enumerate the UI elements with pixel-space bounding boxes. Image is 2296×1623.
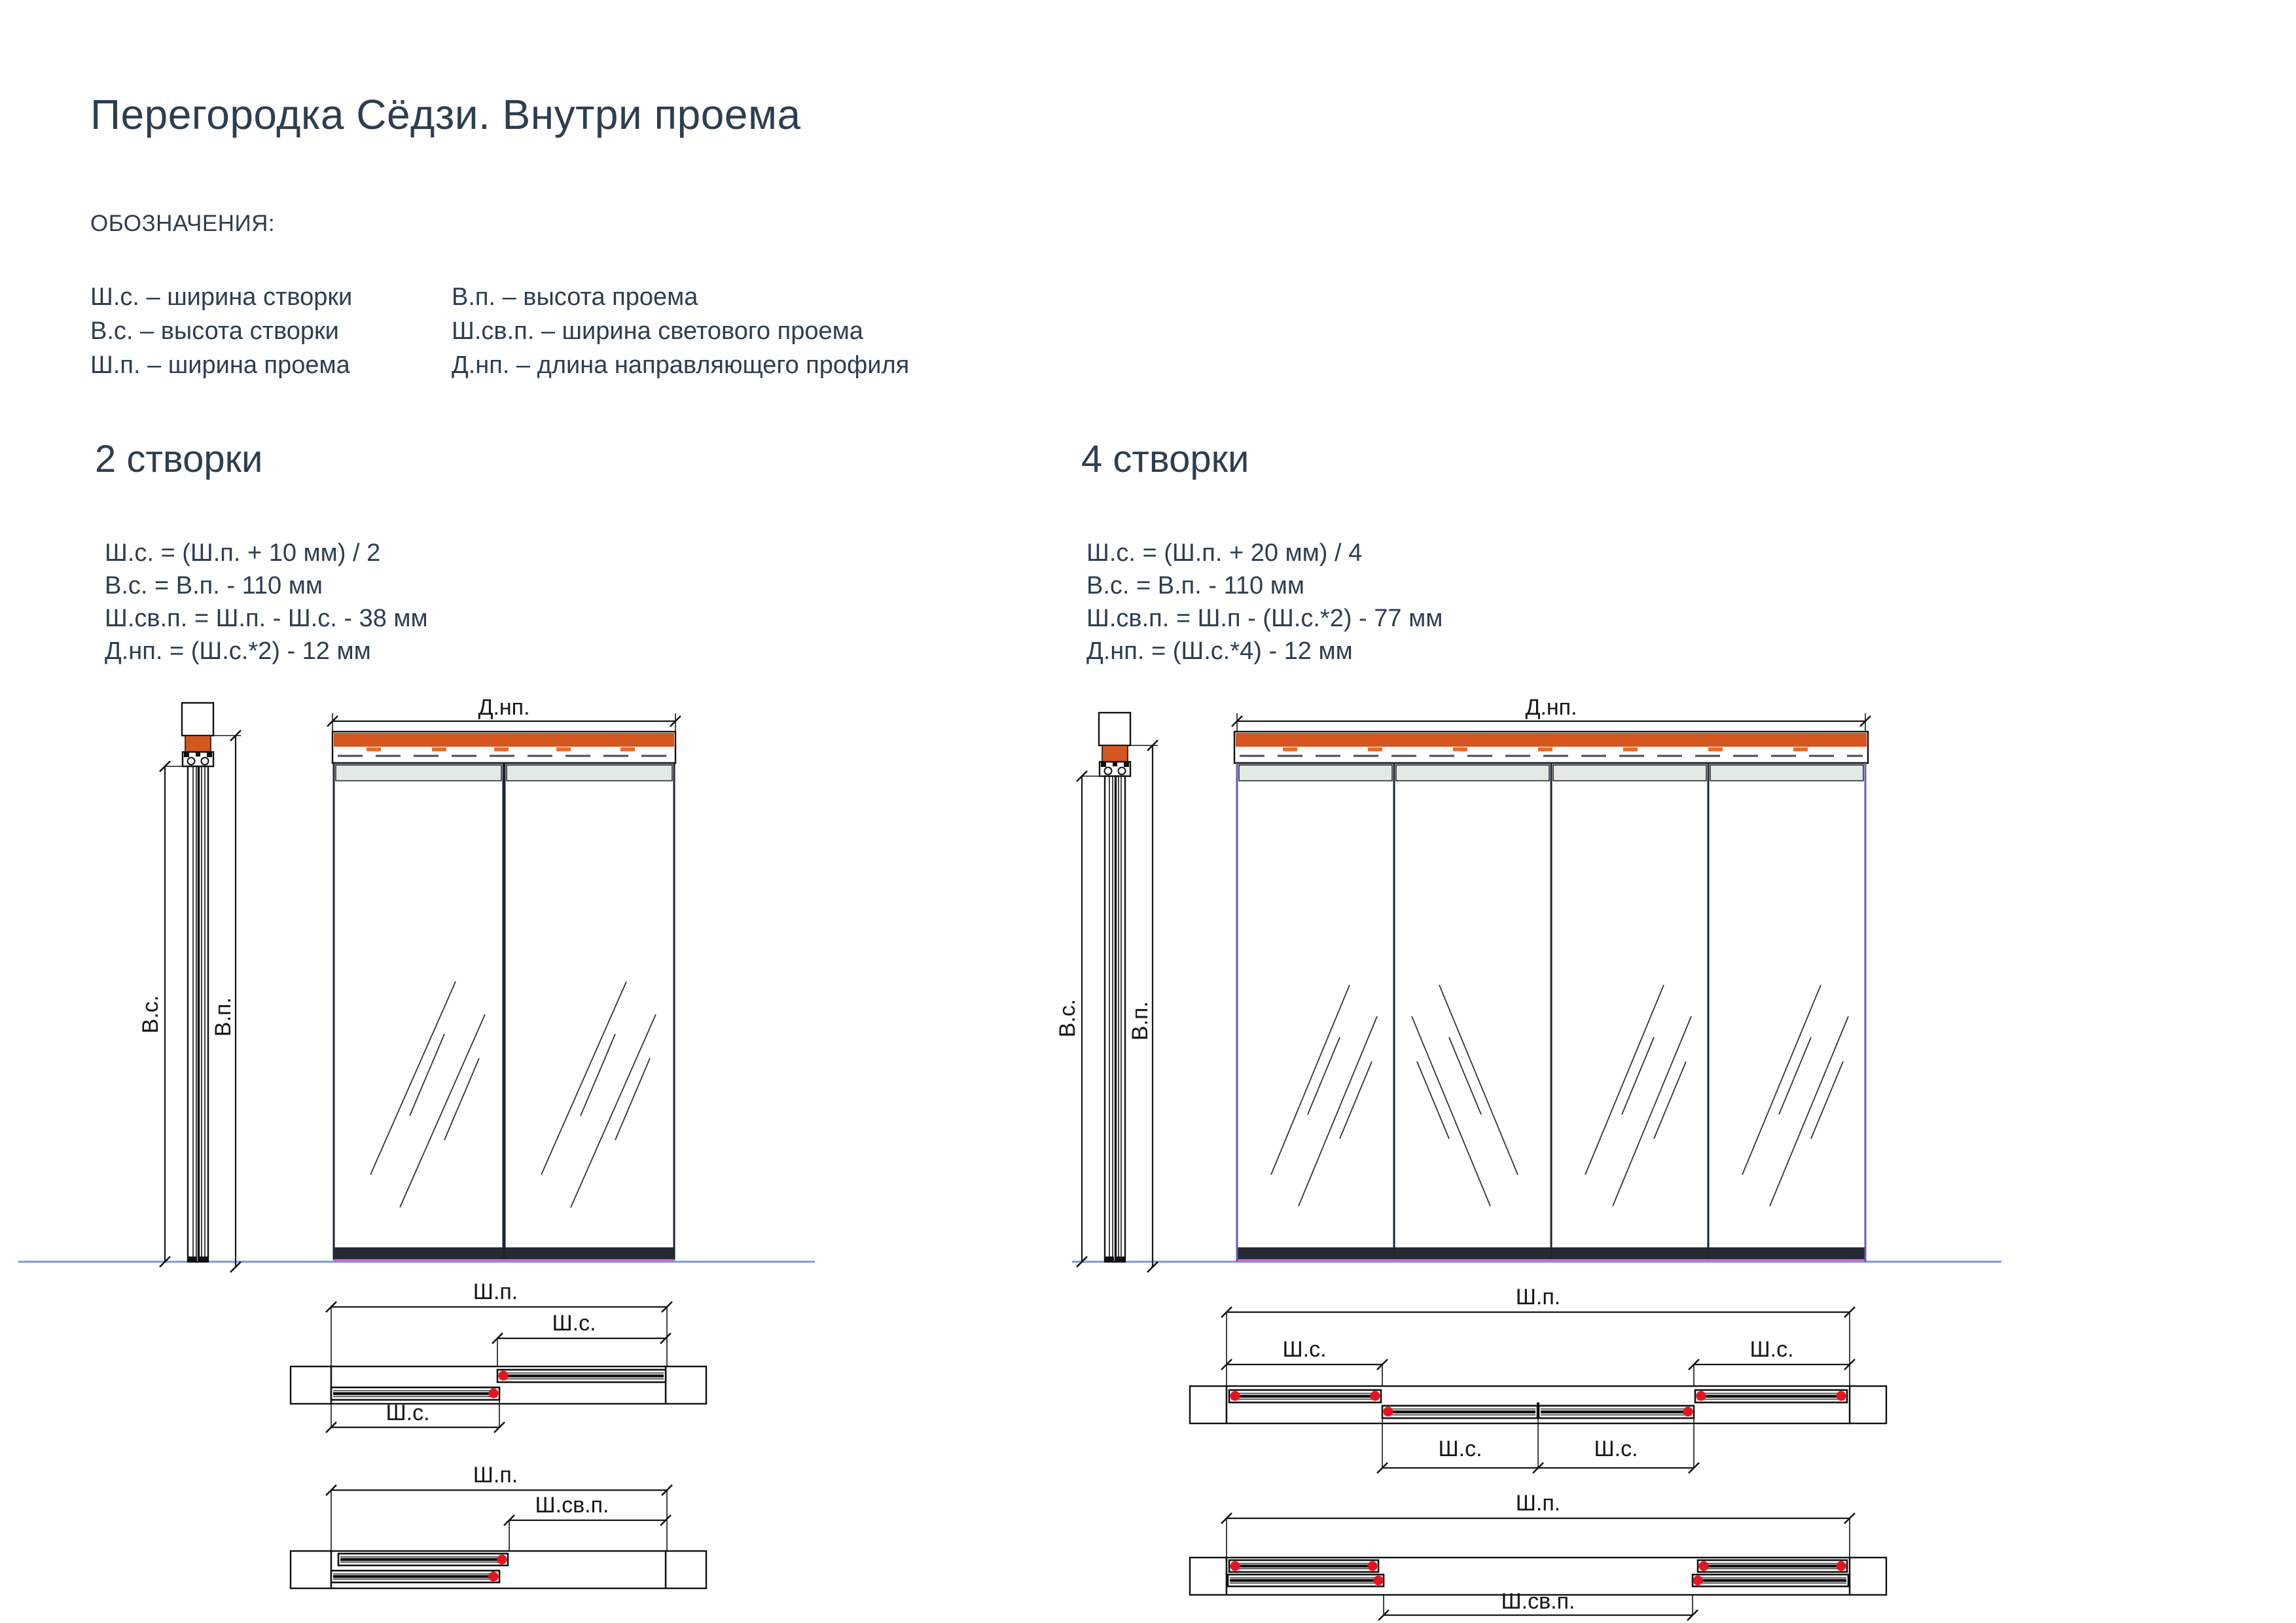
two-leaf-side-profile bbox=[182, 703, 213, 1262]
leaf-plan-bar bbox=[1695, 1390, 1847, 1402]
dim-label-shp: Ш.п. bbox=[473, 1279, 518, 1304]
leaf-plan-bar bbox=[1693, 1575, 1848, 1586]
legend-item: Ш.св.п. – ширина светового проема bbox=[452, 314, 863, 348]
leaf-plan-bar bbox=[1228, 1575, 1384, 1586]
dim-label-vs: В.с. bbox=[1055, 999, 1080, 1038]
dim-vs: В.с. bbox=[1055, 771, 1105, 1267]
dim-dnp: Д.нп. bbox=[327, 695, 681, 732]
dim-dnp: Д.нп. bbox=[1232, 695, 1871, 732]
track-cover bbox=[1236, 733, 1867, 747]
legend-item: В.с. – высота створки bbox=[90, 314, 339, 348]
handle-dot bbox=[497, 1555, 507, 1565]
handle-dot bbox=[1837, 1391, 1846, 1401]
formula: Ш.св.п. = Ш.п. - Ш.с. - 38 мм bbox=[105, 602, 428, 635]
dim-label-vp: В.п. bbox=[1128, 1001, 1153, 1041]
dim-label-shs: Ш.с. bbox=[1749, 1337, 1793, 1362]
four-leaf-plan-open: Ш.п. bbox=[1190, 1491, 1886, 1620]
leaf-panel bbox=[1237, 763, 1394, 1259]
dim-label-dnp: Д.нп. bbox=[1525, 695, 1577, 720]
legend-item: Д.нп. – длина направляющего профиля bbox=[452, 348, 909, 382]
leaf-plan-bar bbox=[1698, 1560, 1847, 1572]
four-leaf-side-profile bbox=[1099, 713, 1130, 1262]
dim-label-vs: В.с. bbox=[138, 995, 163, 1034]
handle-dot bbox=[1371, 1391, 1380, 1401]
handle-dot bbox=[1374, 1576, 1384, 1586]
handle-dot bbox=[1693, 1576, 1703, 1586]
formula: Ш.св.п. = Ш.п - (Ш.с.*2) - 77 мм bbox=[1086, 602, 1443, 635]
formula: Ш.с. = (Ш.п. + 10 мм) / 2 bbox=[105, 537, 380, 569]
four-leaf-plan-closed: Ш.п. Ш.с. Ш.с. bbox=[1190, 1285, 1886, 1473]
four-leaf-front-view: Д.нп. bbox=[1232, 695, 1871, 1262]
handle-dot bbox=[1699, 1561, 1709, 1571]
dim-vs: В.с. bbox=[138, 761, 188, 1267]
leaf-plan-bar bbox=[338, 1554, 508, 1565]
leaf-plan-bar bbox=[1382, 1406, 1537, 1418]
dim-label-shs: Ш.с. bbox=[1282, 1337, 1326, 1362]
handle-dot bbox=[1368, 1561, 1378, 1571]
formula: Д.нп. = (Ш.с.*2) - 12 мм bbox=[105, 635, 371, 668]
two-leaf-front-view: Д.нп. bbox=[327, 695, 681, 1262]
dim-label-vp: В.п. bbox=[211, 997, 236, 1037]
leaf-panel bbox=[1551, 763, 1708, 1259]
leaf-plan-bar bbox=[1229, 1390, 1381, 1402]
handle-dot bbox=[489, 1572, 499, 1582]
handle-dot bbox=[1230, 1391, 1240, 1401]
variant-heading-4-leaf: 4 створки bbox=[1081, 437, 1249, 481]
handle-dot bbox=[1683, 1407, 1693, 1417]
two-leaf-drawing: В.с. В.п. Д.нп. bbox=[0, 681, 884, 1623]
dim-vp: В.п. bbox=[1128, 740, 1158, 1272]
formula: Д.нп. = (Ш.с.*4) - 12 мм bbox=[1086, 635, 1353, 668]
handle-dot bbox=[1837, 1561, 1846, 1571]
dim-label-shs: Ш.с. bbox=[552, 1311, 596, 1336]
formula: В.с. = В.п. - 110 мм bbox=[1086, 569, 1304, 602]
leaf-panel bbox=[334, 763, 503, 1259]
dim-label-shp: Ш.п. bbox=[473, 1463, 518, 1488]
leaf-plan-bar bbox=[331, 1571, 499, 1582]
dim-vp: В.п. bbox=[211, 730, 241, 1272]
drawing-sheet: Перегородка Сёдзи. Внутри проема ОБОЗНАЧ… bbox=[0, 0, 2296, 1623]
dim-label-shs: Ш.с. bbox=[386, 1400, 429, 1425]
four-leaf-drawing: В.с. В.п. Д.нп. bbox=[1014, 681, 2296, 1623]
formula: Ш.с. = (Ш.п. + 20 мм) / 4 bbox=[1086, 537, 1362, 569]
bottom-guide-strip bbox=[334, 1259, 674, 1262]
leaf-panel bbox=[505, 763, 674, 1259]
dim-label-shs: Ш.с. bbox=[1438, 1436, 1482, 1461]
legend-heading: ОБОЗНАЧЕНИЯ: bbox=[90, 211, 275, 237]
dim-label-shsvp: Ш.св.п. bbox=[1501, 1589, 1575, 1614]
dim-label-shp: Ш.п. bbox=[1516, 1285, 1560, 1310]
handle-dot bbox=[1384, 1407, 1393, 1417]
handle-dot bbox=[1230, 1561, 1240, 1571]
leaf-panel bbox=[1708, 763, 1865, 1259]
legend-item: Ш.с. – ширина створки bbox=[90, 280, 352, 314]
dim-label-shs: Ш.с. bbox=[1594, 1436, 1638, 1461]
leaf-plan-bar bbox=[1229, 1560, 1378, 1572]
formula: В.с. = В.п. - 110 мм bbox=[105, 569, 323, 602]
leaf-plan-bar bbox=[497, 1370, 666, 1382]
leaf-panel bbox=[1394, 763, 1551, 1259]
dim-label-shsvp: Ш.св.п. bbox=[535, 1493, 609, 1518]
two-leaf-plan-closed: Ш.п. Ш.с. bbox=[291, 1279, 706, 1433]
page-title: Перегородка Сёдзи. Внутри проема bbox=[90, 90, 801, 139]
track-cover bbox=[334, 733, 674, 747]
legend-item: Ш.п. – ширина проема bbox=[90, 348, 350, 382]
legend-item: В.п. – высота проема bbox=[452, 280, 698, 314]
bottom-guide-strip bbox=[1237, 1259, 1865, 1262]
handle-dot bbox=[499, 1371, 509, 1381]
variant-heading-2-leaf: 2 створки bbox=[95, 437, 262, 481]
leaf-plan-bar bbox=[331, 1387, 499, 1400]
two-leaf-plan-open: Ш.п. Ш.св.п. bbox=[291, 1463, 706, 1588]
dim-label-dnp: Д.нп. bbox=[478, 695, 529, 720]
dim-label-shp: Ш.п. bbox=[1516, 1491, 1560, 1516]
handle-dot bbox=[489, 1389, 499, 1399]
handle-dot bbox=[1696, 1391, 1706, 1401]
leaf-plan-bar bbox=[1539, 1406, 1694, 1418]
